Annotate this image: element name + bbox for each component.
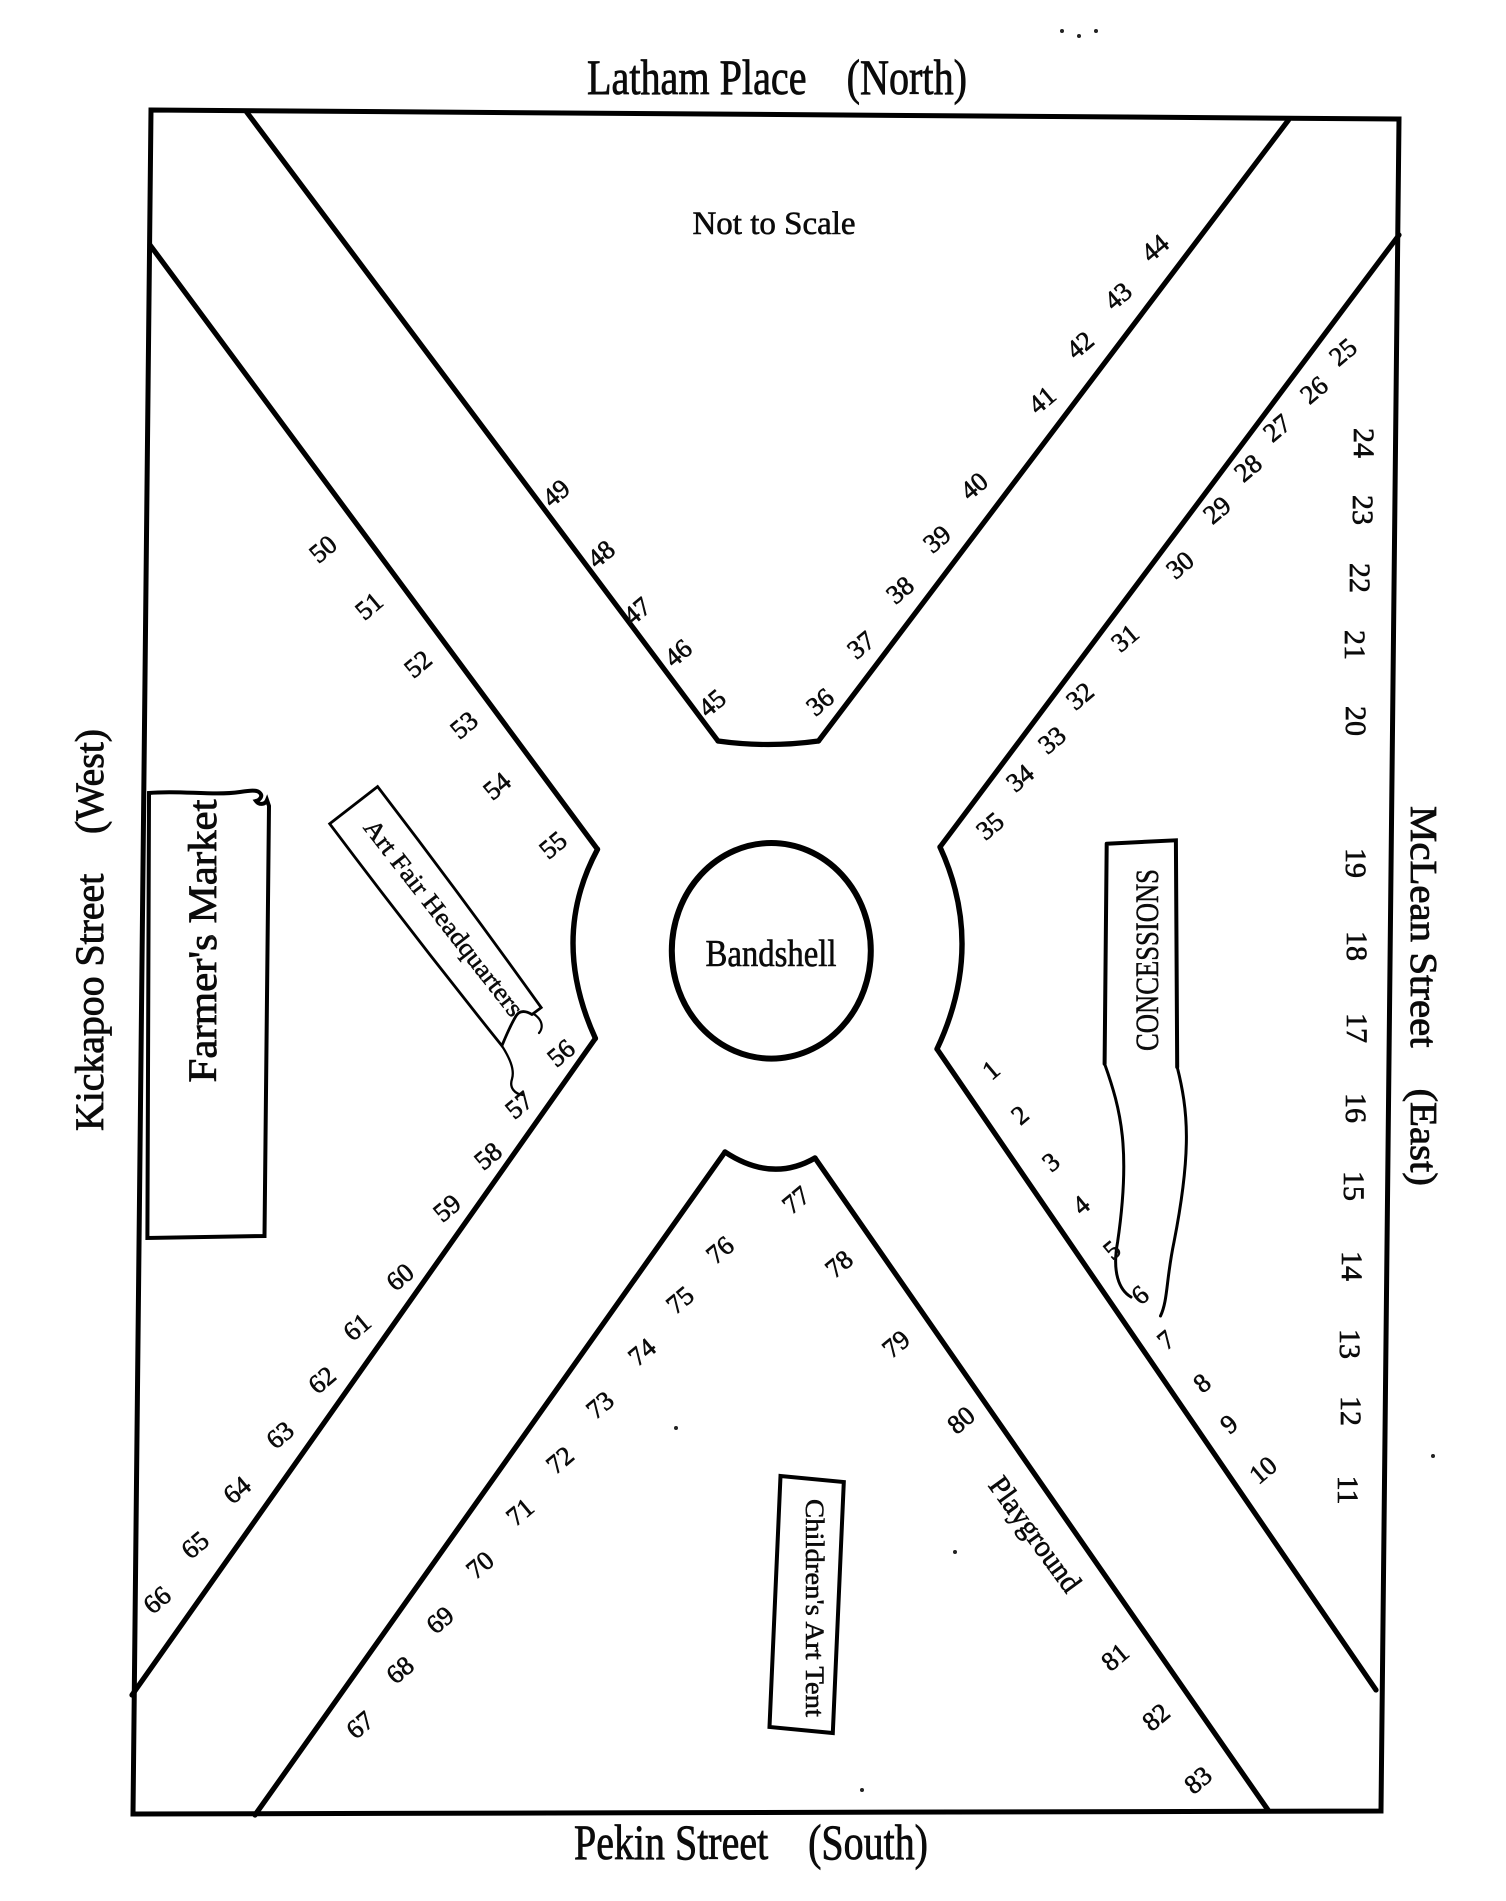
svg-text:23: 23 (1346, 495, 1379, 525)
svg-text:19: 19 (1339, 848, 1372, 878)
svg-text:14: 14 (1335, 1251, 1368, 1281)
svg-text:Children's Art Tent: Children's Art Tent (800, 1499, 829, 1718)
svg-text:McLean Street (East): McLean Street (East) (1402, 806, 1444, 1186)
svg-text:24: 24 (1347, 428, 1380, 458)
svg-text:CONCESSIONS: CONCESSIONS (1130, 869, 1166, 1051)
svg-text:11: 11 (1331, 1476, 1364, 1505)
svg-text:21: 21 (1338, 630, 1371, 660)
svg-text:20: 20 (1339, 706, 1372, 736)
svg-text:15: 15 (1337, 1171, 1370, 1201)
svg-text:16: 16 (1339, 1093, 1372, 1123)
svg-text:22: 22 (1343, 563, 1376, 593)
svg-text:Not to Scale: Not to Scale (692, 206, 855, 242)
svg-text:Kickapoo Street (West): Kickapoo Street (West) (67, 729, 112, 1131)
svg-text:13: 13 (1333, 1329, 1366, 1359)
svg-text:Bandshell: Bandshell (706, 933, 837, 975)
svg-text:17: 17 (1340, 1013, 1373, 1043)
svg-text:12: 12 (1334, 1396, 1367, 1426)
svg-text:18: 18 (1340, 931, 1373, 961)
svg-text:Farmer's Market: Farmer's Market (180, 800, 225, 1083)
svg-text:Pekin Street (South): Pekin Street (South) (574, 1814, 928, 1870)
svg-text:Latham Place (North): Latham Place (North) (587, 49, 967, 105)
